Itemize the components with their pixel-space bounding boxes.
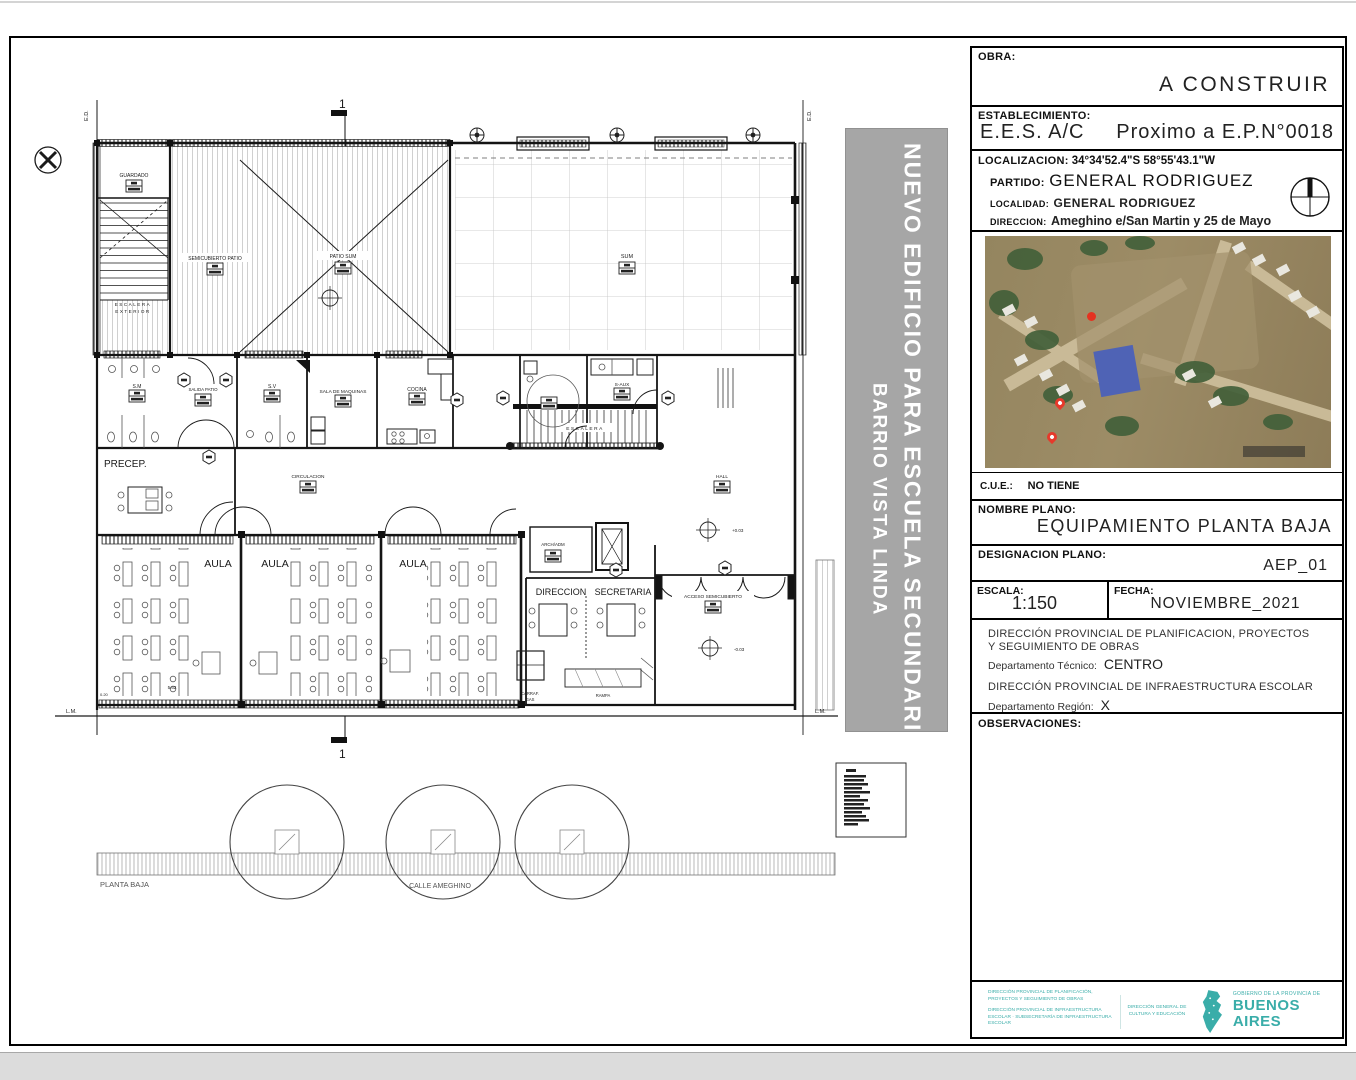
designacion-value: AEP_01: [1263, 557, 1328, 575]
designacion-label: DESIGNACION PLANO:: [978, 549, 1106, 561]
footer-gov-block: GOBIERNO DE LA PROVINCIA DE BUENOS AIRES: [1233, 992, 1342, 1031]
office-desks: [529, 596, 653, 680]
label-calle-ameghino: CALLE AMEGHINO: [409, 883, 471, 890]
sat-roof: [1276, 264, 1290, 277]
label-ed-right: E.D.: [807, 110, 813, 121]
sat-roof: [1024, 316, 1038, 329]
title-block: OBRA: A CONSTRUIR ESTABLECIMIENTO: E.E.S…: [970, 46, 1344, 1039]
door-tags: [178, 373, 731, 577]
dp1-line2: Y SEGUIMIENTO DE OBRAS: [988, 641, 1334, 654]
level-minus: -0.03: [734, 647, 745, 652]
page-bottom-edge: [0, 1052, 1356, 1080]
project-banner: NUEVO EDIFICIO PARA ESCUELA SECUNDARIA B…: [845, 128, 948, 732]
label-direccion: DIRECCION: [536, 587, 587, 597]
sat-trees: [1125, 236, 1155, 250]
label-aula-3: AULA: [399, 558, 426, 570]
sat-red-marker: [1087, 312, 1096, 321]
establecimiento-value-1: E.E.S. A/C: [980, 121, 1084, 144]
dp2-dep-value: X: [1101, 697, 1110, 713]
footer-row: DIRECCIÓN PROVINCIAL DE PLANIFICACIÓN, P…: [972, 980, 1342, 1041]
cue-label: C.U.E.:: [980, 481, 1013, 492]
fecha-cell: FECHA: NOVIEMBRE_2021: [1109, 582, 1342, 618]
label-sum: SUM: [621, 254, 634, 260]
label-sv: S.V: [268, 384, 277, 390]
label-lm-right: L.M.: [815, 709, 826, 715]
dp1-line1: DIRECCIÓN PROVINCIAL DE PLANIFICACION, P…: [988, 628, 1334, 641]
fixtures: [108, 358, 654, 448]
exterior-stairs: [100, 198, 168, 300]
label-escalera: ESCALERA: [566, 426, 604, 432]
sat-trees: [1175, 361, 1215, 383]
sat-watermark: [1243, 446, 1305, 457]
direcciones-row: DIRECCIÓN PROVINCIAL DE PLANIFICACION, P…: [972, 618, 1342, 712]
escala-value: 1:150: [972, 593, 1097, 614]
sat-roof: [1072, 400, 1086, 413]
establecimiento-value-2: Proximo a E.P.N°0018: [1116, 121, 1334, 144]
classroom-desks: [112, 548, 505, 696]
satellite-image: [985, 236, 1331, 468]
obra-row: OBRA: A CONSTRUIR: [972, 48, 1342, 105]
footer-org-texts: DIRECCIÓN PROVINCIAL DE PLANIFICACIÓN, P…: [988, 990, 1114, 1032]
label-escalera-exterior-2: EXTERIOR: [115, 309, 150, 314]
localizacion-value: 34°34'52.4"S 58°55'43.1"W: [1072, 155, 1215, 167]
main-staircase: ESCALERA: [506, 404, 664, 450]
section-number-top: 1: [339, 97, 346, 111]
localizacion-label: LOCALIZACION:: [978, 155, 1069, 167]
sat-roof: [1014, 354, 1028, 367]
label-escalera-exterior-1: ESCALERA: [115, 302, 152, 307]
dim-020: 0.20: [100, 692, 109, 697]
label-cocina: COCINA: [407, 387, 427, 393]
partido-label: PARTIDO:: [990, 177, 1045, 189]
establecimiento-row: ESTABLECIMIENTO: E.E.S. A/C Proximo a E.…: [972, 105, 1342, 149]
street-trees: [230, 785, 629, 899]
label-planta-baja: PLANTA BAJA: [100, 880, 149, 889]
service-areas: [517, 651, 641, 687]
localizacion-row: LOCALIZACION: 34°34'52.4"S 58°55'43.1"W …: [972, 149, 1342, 230]
sat-blue-tarp: [1093, 345, 1140, 397]
section-marker-bottom: 1: [331, 716, 347, 761]
label-precep: PRECEP.: [104, 459, 147, 470]
nombre-plano-value: EQUIPAMIENTO PLANTA BAJA: [1037, 516, 1332, 537]
references-box: [836, 763, 906, 837]
label-circulacion: CIRCULACION: [291, 474, 325, 480]
section-marker-top: 1: [331, 97, 347, 146]
label-secretaria: SECRETARIA: [595, 587, 652, 597]
designacion-row: DESIGNACION PLANO: AEP_01: [972, 544, 1342, 580]
label-salida-patio: SALIDA PATIO: [188, 387, 218, 392]
partido-value: GENERAL RODRIGUEZ: [1049, 171, 1253, 190]
sat-roof: [1252, 254, 1266, 267]
label-sm: S.M: [133, 384, 142, 390]
dp2-line1: DIRECCIÓN PROVINCIAL DE INFRAESTRUCTURA …: [988, 681, 1334, 694]
label-acceso: ACCESO SEMICUBIERTO: [684, 594, 742, 600]
label-aula-1: AULA: [204, 558, 231, 570]
escala-cell: ESCALA: 1:150: [972, 582, 1109, 618]
obra-value: A CONSTRUIR: [1159, 73, 1330, 97]
direccion-value: Ameghino e/San Martin y 25 de Mayo: [1051, 214, 1271, 228]
nombre-plano-row: NOMBRE PLANO: EQUIPAMIENTO PLANTA BAJA: [972, 499, 1342, 544]
sat-road: [1245, 261, 1331, 339]
obra-label: OBRA:: [978, 51, 1016, 63]
label-lm-left: L.M.: [66, 709, 77, 715]
north-symbol-icon: [35, 147, 61, 173]
footer-divider: [1120, 995, 1121, 1029]
dp1-dep-label: Departamento Técnico:: [988, 660, 1097, 672]
label-hall: HALL: [716, 474, 728, 480]
banner-line-2: BARRIO VISTA LINDA: [868, 129, 890, 731]
sat-trees: [1105, 416, 1139, 436]
sat-trees: [1025, 330, 1059, 350]
sat-trees: [1007, 248, 1043, 270]
observaciones-label: OBSERVACIONES:: [978, 718, 1081, 730]
label-guardado: GUARDADO: [120, 173, 149, 179]
sat-trees: [1263, 414, 1293, 430]
hall-ramp-lines: [718, 368, 733, 408]
fecha-value: NOVIEMBRE_2021: [1109, 595, 1342, 613]
cue-row: C.U.E.: NO TIENE: [972, 472, 1342, 499]
footer-center-text: DIRECCIÓN GENERAL DE CULTURA Y EDUCACIÓN: [1127, 1005, 1187, 1018]
label-carraf: CARRAF.: [521, 691, 539, 696]
localidad-label: LOCALIDAD:: [990, 199, 1049, 209]
floor-plan: 1 1: [0, 0, 968, 1046]
observaciones-row: OBSERVACIONES:: [972, 712, 1342, 977]
label-rampa: RAMPA: [596, 693, 611, 698]
cue-value: NO TIENE: [1028, 480, 1080, 492]
label-ed-left: E.D.: [84, 110, 90, 121]
precep-desk: [118, 487, 172, 513]
nombre-plano-label: NOMBRE PLANO:: [978, 504, 1076, 516]
footer-org-2: DIRECCIÓN PROVINCIAL DE INFRAESTRUCTURA …: [988, 1008, 1114, 1027]
level-plus: +0.03: [732, 528, 744, 533]
label-arch-adm: ARCH/ADM: [541, 542, 565, 547]
sat-trees: [1080, 240, 1108, 256]
footer-org-1: DIRECCIÓN PROVINCIAL DE PLANIFICACIÓN, P…: [988, 990, 1114, 1003]
section-number-bottom: 1: [339, 747, 346, 761]
label-patio-sum: PATIO SUM: [330, 254, 357, 260]
direccion-label: DIRECCION:: [990, 217, 1047, 227]
label-semicubierto-patio: SEMICUBIERTO PATIO: [188, 256, 242, 262]
province-map-logo: [1201, 987, 1225, 1037]
localidad-value: GENERAL RODRIGUEZ: [1053, 196, 1195, 210]
dp1-dep-value: CENTRO: [1104, 656, 1163, 672]
label-sala-maquinas: SALA DE MAQUINAS: [320, 389, 367, 395]
label-gas: GAS: [526, 697, 535, 702]
sat-map-pin: [1045, 430, 1059, 444]
label-s-aux: S-AUX: [615, 382, 630, 388]
satellite-row: [972, 230, 1342, 472]
escala-fecha-row: ESCALA: 1:150 FECHA: NOVIEMBRE_2021: [972, 580, 1342, 618]
gov-big-text: BUENOS AIRES: [1233, 998, 1342, 1031]
drawing-sheet: 1 1: [0, 0, 1356, 1080]
north-compass-icon: [1288, 175, 1332, 219]
banner-line-1: NUEVO EDIFICIO PARA ESCUELA SECUNDARIA: [899, 129, 926, 731]
label-aula-2: AULA: [261, 558, 288, 570]
dim-562: 5.62: [168, 685, 177, 690]
